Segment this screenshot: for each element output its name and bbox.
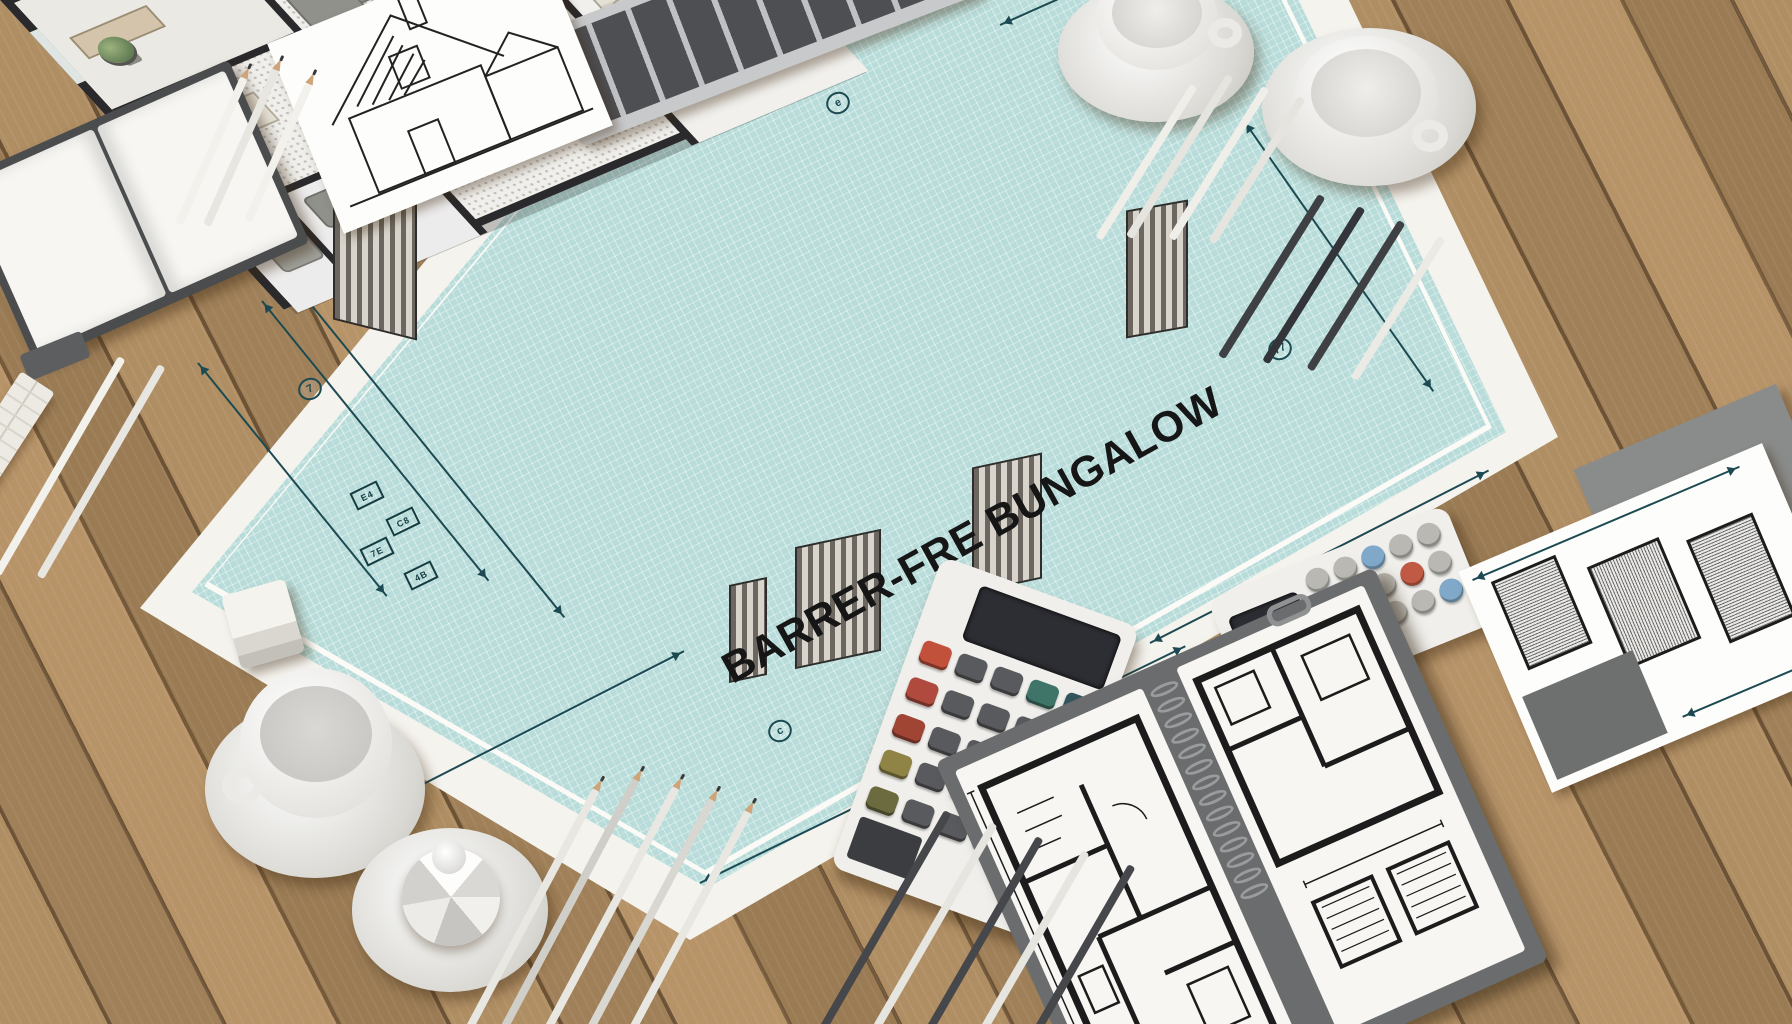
calculator-key (1424, 547, 1455, 578)
calculator-key (1397, 558, 1428, 589)
dimension-mark-glyph: 7 (305, 382, 316, 395)
cup-interior (1311, 49, 1421, 137)
calculator-key (891, 712, 927, 745)
dimension-line (1682, 653, 1792, 717)
calculator-key (989, 665, 1025, 698)
calculator-key (1408, 586, 1439, 617)
knob-top (432, 840, 466, 874)
cup-handle (1208, 18, 1242, 48)
calculator-key (1024, 678, 1060, 711)
hatch-swatch (1491, 555, 1593, 671)
cup-handle (1412, 120, 1448, 152)
hatch-swatch (1587, 537, 1702, 669)
desk-scene: ∅ e Ø 1ᵐ v 7 c 77 E4 C8 7E 4B (0, 0, 1792, 1024)
legend-box-code: 7E (369, 544, 385, 559)
cup-handle (222, 768, 262, 804)
calculator-key (1385, 530, 1416, 561)
calculator-key (940, 689, 976, 722)
calculator-key (900, 798, 936, 831)
calculator-key (917, 639, 953, 672)
cup-interior (1112, 0, 1202, 48)
legend-box-code: 4B (413, 568, 430, 583)
coffee-cup-left (240, 668, 392, 818)
legend-box-code: C8 (395, 514, 412, 529)
calculator-key (953, 652, 989, 685)
spiral-coil (1238, 880, 1270, 902)
gray-swatch (1522, 650, 1668, 780)
legend-box-code: E4 (359, 488, 375, 503)
cup-interior (260, 686, 372, 782)
calculator-key (864, 785, 900, 818)
dimension-mark-glyph: e (833, 96, 844, 109)
calculator-key (877, 748, 913, 781)
hatch-swatch (1686, 512, 1792, 643)
calculator-key (904, 676, 940, 709)
calculator-key (1413, 519, 1444, 550)
calculator-key (1358, 542, 1389, 573)
dimension-mark-glyph: c (775, 724, 786, 737)
